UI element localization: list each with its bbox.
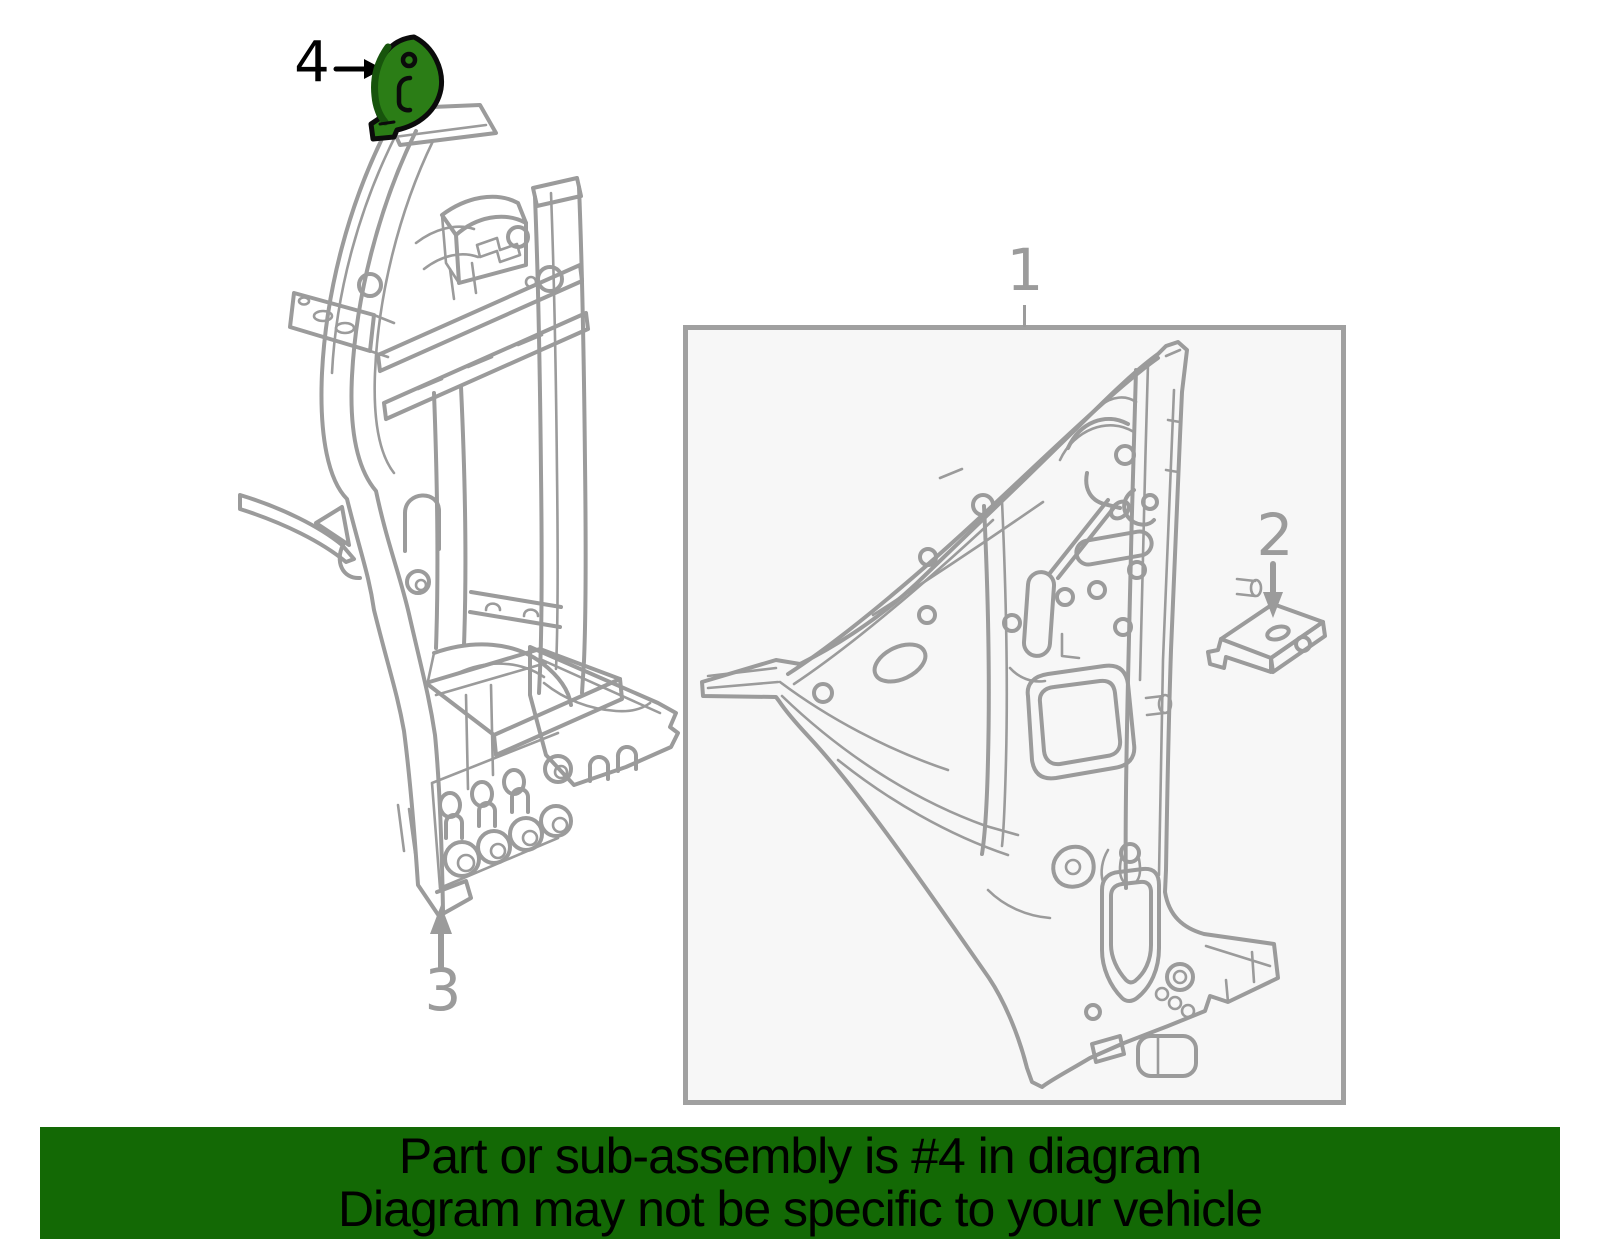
callout-4-label: 4 [280,35,344,91]
callout-1-label: 1 [993,241,1057,299]
callout-1-connector [1023,305,1026,327]
diagram-box [683,325,1346,1105]
bracket-part-illustration[interactable] [1208,604,1325,672]
callout-2-label: 2 [1243,506,1307,564]
banner-line-2: Diagram may not be specific to your vehi… [338,1183,1262,1236]
highlighted-part-illustration[interactable] [330,25,455,147]
callout-3-label: 3 [411,961,475,1019]
hinge-pillar-panel-illustration[interactable] [688,330,1341,1100]
highlight-banner: Part or sub-assembly is #4 in diagram Di… [40,1127,1560,1239]
parts-diagram-canvas: 1 2 3 4 Part or sub-assembly is #4 in di… [0,0,1600,1249]
pillar-inner-assembly-illustration[interactable] [228,93,688,983]
banner-line-1: Part or sub-assembly is #4 in diagram [399,1130,1201,1183]
